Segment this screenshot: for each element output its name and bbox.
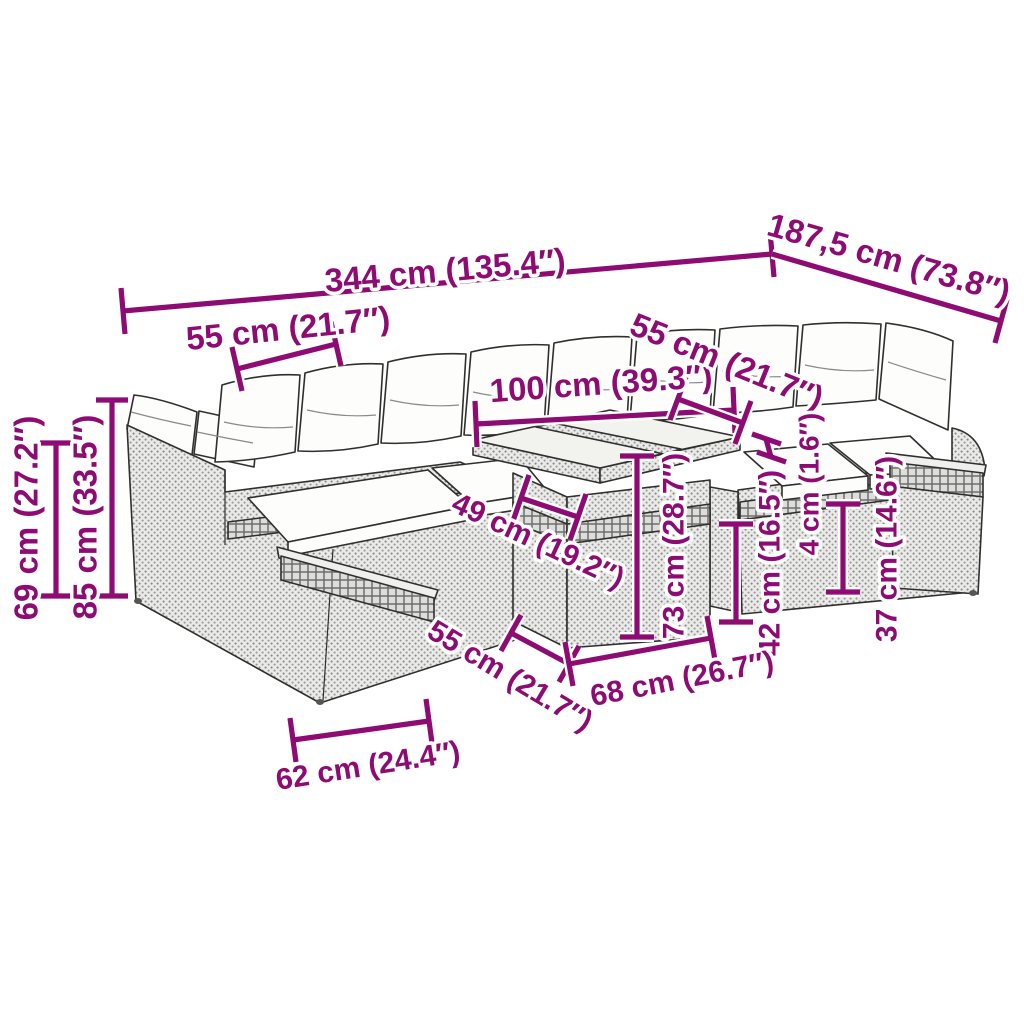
dim-label-table-height: 73 cm (28.7″) [658,453,691,639]
dim-label-seat-depth: 62 cm (24.4″) [273,735,462,797]
dim-label-armrest-gap: 4 cm (1.6″) [794,413,825,556]
dim-label-total-width: 344 cm (135.4″) [323,241,567,299]
dim-label-base-height: 37 cm (14.6″) [871,456,904,642]
dim-label-total-height: 85 cm (33.5″) [67,415,104,620]
dim-label-left-back-height: 69 cm (27.2″) [8,416,45,621]
dim-label-seat-height: 42 cm (16.5″) [754,470,787,656]
diagram-canvas: 344 cm (135.4″) 187,5 cm (73.8″) 55 cm (… [0,0,1024,1024]
dimension-diagram: 344 cm (135.4″) 187,5 cm (73.8″) 55 cm (… [0,0,1024,1024]
